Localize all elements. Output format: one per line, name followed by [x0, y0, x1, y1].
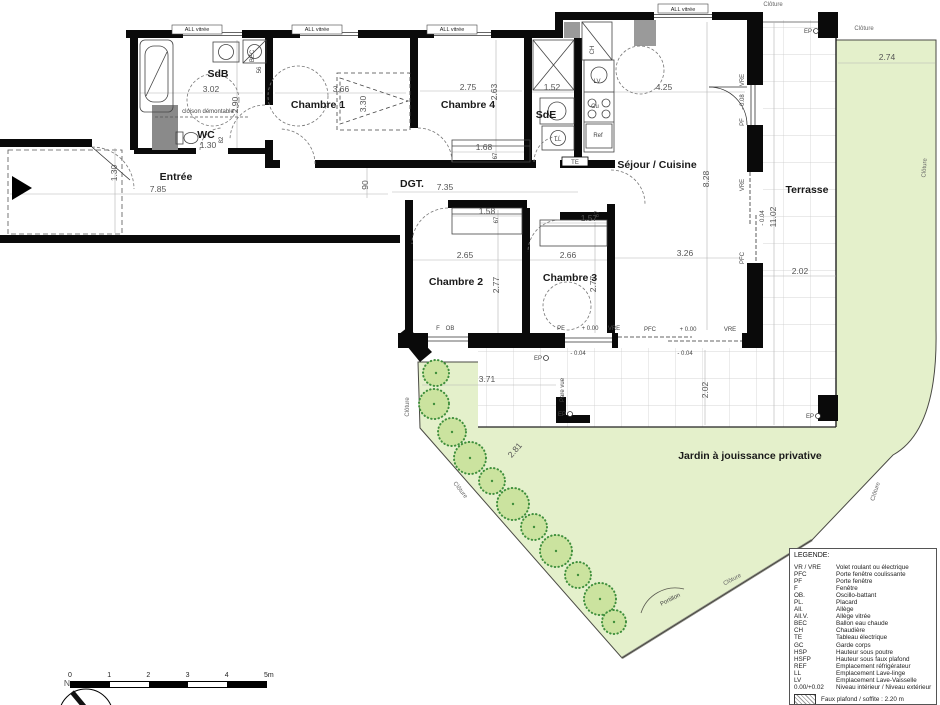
- plan-label: 1.68: [476, 142, 493, 152]
- plan-label: Jardin à jouissance privative: [678, 450, 822, 462]
- plan-label: 82: [219, 136, 225, 143]
- legend-abbr: 0.00/+0.02: [794, 684, 836, 691]
- legend-row: FFenêtre: [794, 585, 932, 592]
- plan-label: - 0.04: [677, 351, 693, 357]
- legend-row: REFEmplacement réfrigérateur: [794, 663, 932, 670]
- legend-row: CHChaudière: [794, 627, 932, 634]
- scale-label: 3: [186, 672, 190, 679]
- plan-label: 2.63: [489, 83, 499, 100]
- plan-label: LL: [555, 137, 562, 143]
- plan-label: Cu: [591, 104, 599, 110]
- legend-desc: Oscillo-battant: [836, 592, 932, 599]
- plan-label: 3.71: [479, 374, 496, 384]
- legend-row: HSPHauteur sous poutre: [794, 649, 932, 656]
- plan-label: VRE: [608, 326, 620, 332]
- scale-segment: [188, 682, 227, 687]
- scale-numbers: 012345m: [70, 672, 280, 681]
- legend-row: PFCPorte fenêtre coulissante: [794, 571, 932, 578]
- legend-abbr: F: [794, 585, 836, 592]
- plan-label: 8.28: [701, 170, 711, 187]
- legend-rows: VR / VREVolet roulant ou électriquePFCPo…: [794, 564, 932, 691]
- legend-desc: Chaudière: [836, 627, 932, 634]
- legend-abbr: All.: [794, 606, 836, 613]
- plan-label: 2.66: [560, 250, 577, 260]
- plan-label: PFC: [740, 251, 746, 264]
- plan-label: BEC: [250, 49, 256, 62]
- legend-abbr: LL: [794, 670, 836, 677]
- legend-row: LLEmplacement Lave-linge: [794, 670, 932, 677]
- legend-abbr: OB.: [794, 592, 836, 599]
- plan-label: EP: [558, 412, 566, 418]
- legend-row: PL.Placard: [794, 599, 932, 606]
- plan-label: 67: [494, 216, 500, 223]
- legend-row: OB.Oscillo-battant: [794, 592, 932, 599]
- plan-label: 11.02: [768, 206, 778, 227]
- plan-label: 1.30: [200, 140, 217, 150]
- scale-segment: [227, 682, 266, 687]
- plan-label: SdE: [536, 109, 556, 121]
- plan-label: Clôture: [451, 481, 468, 500]
- legend-abbr: HSFP: [794, 656, 836, 663]
- legend-abbr: VR / VRE: [794, 564, 836, 571]
- plan-label: Chambre 4: [441, 99, 495, 111]
- legend-desc: Porte fenêtre: [836, 578, 932, 585]
- plan-label: PF: [557, 326, 565, 332]
- plan-label: 3.66: [333, 84, 350, 94]
- scale-label: 5m: [264, 672, 274, 679]
- plan-label: 3.02: [203, 84, 220, 94]
- legend-desc: Emplacement réfrigérateur: [836, 663, 932, 670]
- legend-abbr: BEC: [794, 620, 836, 627]
- plan-label: ALL vitrée: [440, 27, 465, 33]
- plan-label: 2.02: [700, 381, 710, 398]
- legend-desc: Emplacement Lave-Vaisselle: [836, 677, 932, 684]
- legend-row: LVEmplacement Lave-Vaisselle: [794, 677, 932, 684]
- legend-abbr: All.V.: [794, 613, 836, 620]
- scale-bar-strip: [70, 681, 267, 688]
- plan-label: Clôture: [854, 26, 874, 32]
- legend-row: BECBallon eau chaude: [794, 620, 932, 627]
- legend-row: 0.00/+0.02Niveau intérieur / Niveau exté…: [794, 684, 932, 691]
- plan-label: Pare vue: [560, 377, 566, 402]
- plan-label: 3.30: [358, 95, 368, 112]
- plan-label: Clôture: [405, 397, 411, 417]
- plan-label: CH: [590, 46, 596, 55]
- legend-abbr: GC: [794, 642, 836, 649]
- plan-label: + 0.00: [680, 327, 698, 333]
- plan-label: 2.77: [491, 276, 501, 293]
- plan-label: - 0.04: [760, 210, 766, 226]
- floorplan-page: SdBWCEntréeChambre 1DGT.Chambre 4SdESéjo…: [0, 0, 940, 705]
- legend-desc: Porte fenêtre coulissante: [836, 571, 932, 578]
- plan-label: ALL vitrée: [305, 27, 330, 33]
- plan-label: 2.65: [457, 250, 474, 260]
- plan-label: Chambre 1: [291, 99, 345, 111]
- plan-label: PFC: [644, 327, 657, 333]
- legend-desc: Allège: [836, 606, 932, 613]
- plan-label: - 0.04: [570, 351, 586, 357]
- plan-label: 67: [493, 152, 499, 159]
- legend-desc: Volet roulant ou électrique: [836, 564, 932, 571]
- plan-label: 7.35: [437, 182, 454, 192]
- plan-label: Clôture: [763, 2, 783, 8]
- plan-label: Clôture: [870, 481, 882, 502]
- legend-desc: Hauteur sous faux plafond: [836, 656, 932, 663]
- plan-label: Ref: [593, 133, 603, 139]
- legend-row: VR / VREVolet roulant ou électrique: [794, 564, 932, 571]
- hatch-swatch: [794, 694, 816, 705]
- plan-label: ALL vitrée: [185, 27, 210, 33]
- legend-abbr: PL.: [794, 599, 836, 606]
- scale-segment: [110, 682, 149, 687]
- legend-row: PFPorte fenêtre: [794, 578, 932, 585]
- entry-arrow: [12, 176, 32, 200]
- plan-label: cloison démontable: [182, 109, 234, 115]
- scale-label: 0: [68, 672, 72, 679]
- legend-desc: Tableau électrique: [836, 634, 932, 641]
- legend-row: TETableau électrique: [794, 634, 932, 641]
- entry-zone: [8, 150, 122, 234]
- plan-label: Chambre 2: [429, 276, 483, 288]
- plan-label: 1.30: [109, 164, 119, 181]
- plan-label: 56: [257, 66, 263, 73]
- plan-label: 2.75: [460, 82, 477, 92]
- plan-label: EP: [804, 29, 812, 35]
- legend-abbr: HSP: [794, 649, 836, 656]
- plan-label: EP: [806, 414, 814, 420]
- plan-label: 1.58: [479, 206, 496, 216]
- hatch-note: Faux plafond / soffite : 2.20 m: [821, 696, 904, 704]
- scale-label: 4: [225, 672, 229, 679]
- plan-label: VRE: [724, 327, 736, 333]
- plan-label: Entrée: [160, 171, 193, 183]
- legend-abbr: REF: [794, 663, 836, 670]
- legend-abbr: LV: [794, 677, 836, 684]
- legend-desc: Niveau intérieur / Niveau extérieur: [836, 684, 932, 691]
- legend-desc: Garde corps: [836, 642, 932, 649]
- plan-label: PF: [740, 118, 746, 126]
- plan-label: ALL vitrée: [671, 7, 696, 13]
- plan-label: 90: [360, 180, 370, 190]
- plan-label: OB: [446, 326, 455, 332]
- scale-label: 2: [146, 672, 150, 679]
- legend-hatch-row: Faux plafond / soffite : 2.20 m: [794, 694, 932, 705]
- scale-bar: 012345m: [70, 672, 280, 688]
- plan-label: TE: [571, 160, 579, 166]
- plan-label: VRE: [740, 179, 746, 191]
- legend-desc: Allège vitrée: [836, 613, 932, 620]
- legend-row: All.V.Allège vitrée: [794, 613, 932, 620]
- plan-label: DGT.: [400, 178, 424, 190]
- washbasin: [213, 42, 239, 62]
- plan-label: SdB: [208, 68, 229, 80]
- plan-label: 7.85: [150, 184, 167, 194]
- plan-label: 67: [595, 210, 601, 217]
- legend-row: All.Allège: [794, 606, 932, 613]
- legend-desc: Hauteur sous poutre: [836, 649, 932, 656]
- scale-segment: [71, 682, 110, 687]
- plan-label: LV: [594, 79, 601, 85]
- plan-label: 2.77: [588, 275, 598, 292]
- plan-label: EP: [534, 356, 542, 362]
- plan-label: 2.02: [792, 266, 809, 276]
- legend-desc: Emplacement Lave-linge: [836, 670, 932, 677]
- plan-label: 2.74: [879, 52, 896, 62]
- legend-abbr: TE: [794, 634, 836, 641]
- plan-label: 3.26: [677, 248, 694, 258]
- legend-desc: Ballon eau chaude: [836, 620, 932, 627]
- legend-row: GCGarde corps: [794, 642, 932, 649]
- plan-label: - 0.08: [740, 94, 746, 110]
- scale-segment: [149, 682, 188, 687]
- legend-desc: Placard: [836, 599, 932, 606]
- plan-label: Séjour / Cuisine: [617, 159, 697, 171]
- plan-label: + 0.00: [582, 326, 600, 332]
- legend-abbr: PFC: [794, 571, 836, 578]
- legend-abbr: CH: [794, 627, 836, 634]
- scale-label: 1: [107, 672, 111, 679]
- compass: [59, 689, 113, 705]
- plan-label: 1.52: [544, 82, 561, 92]
- legend-abbr: PF: [794, 578, 836, 585]
- plan-label: 4.25: [656, 82, 673, 92]
- legend-title: LEGENDE:: [794, 552, 932, 559]
- legend-box: LEGENDE: VR / VREVolet roulant ou électr…: [789, 548, 937, 705]
- legend-row: HSFPHauteur sous faux plafond: [794, 656, 932, 663]
- legend-desc: Fenêtre: [836, 585, 932, 592]
- plan-label: VRE: [740, 74, 746, 86]
- plan-label: Terrasse: [785, 184, 828, 196]
- plan-label: F: [436, 326, 440, 332]
